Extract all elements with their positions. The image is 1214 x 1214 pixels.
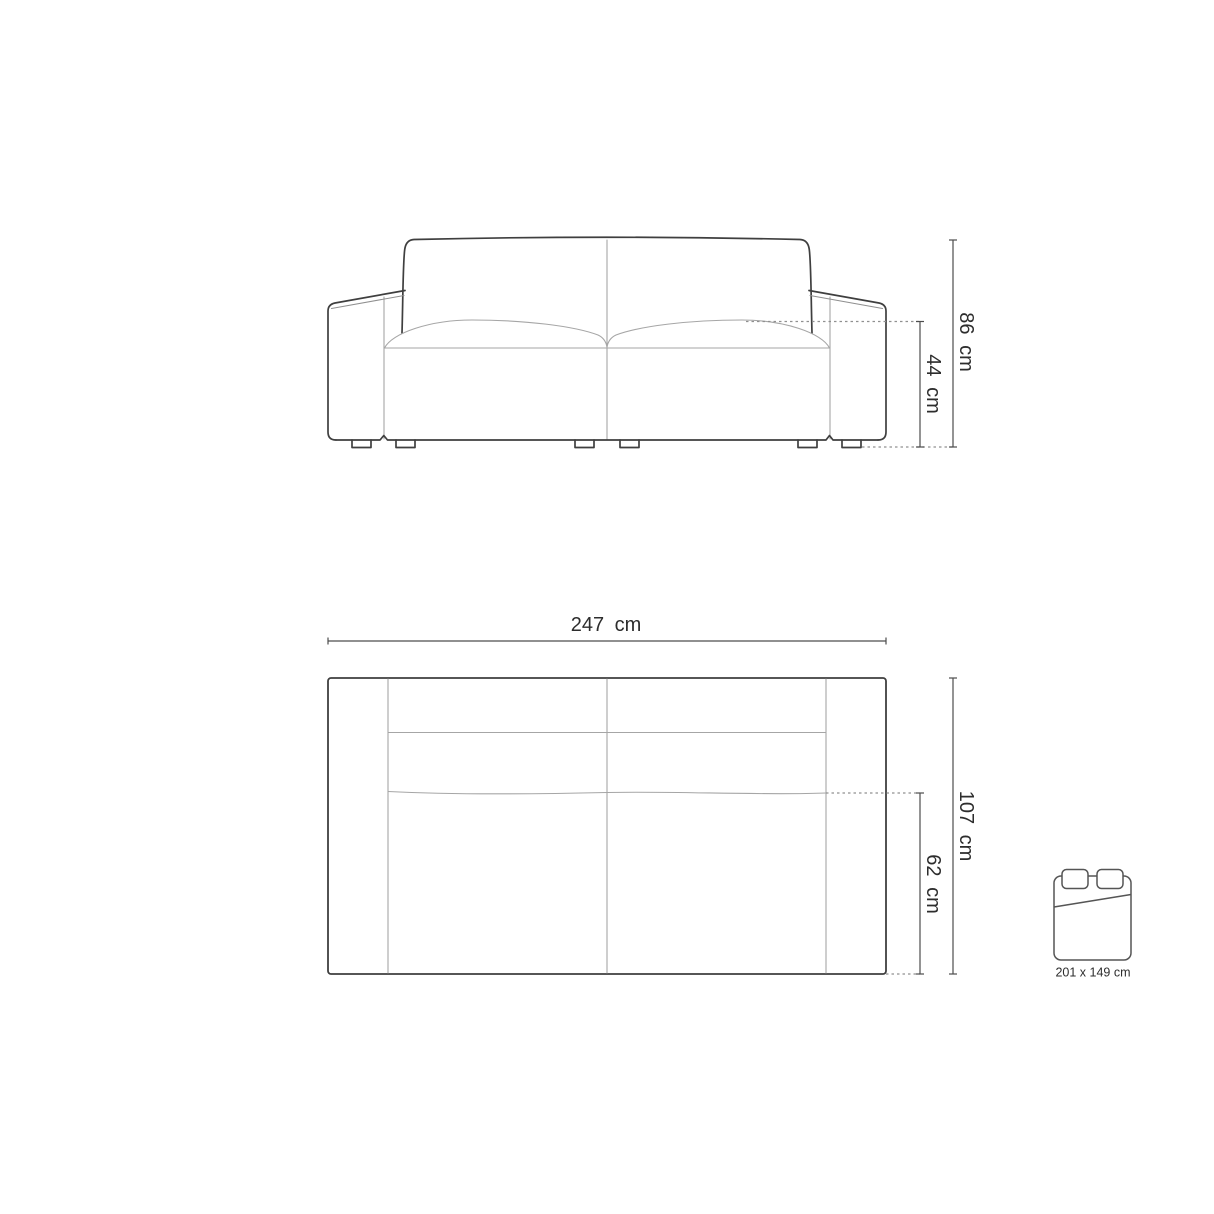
dimension-label-total-depth: 107 cm [955,791,977,862]
bed-pillow-left [1062,870,1088,889]
bed-pillow-right [1097,870,1123,889]
bed-blanket-fold [1054,895,1131,908]
sofa-leg [798,440,817,448]
dimension-label-seat-depth: 62 cm [922,854,944,913]
plan-view [328,678,886,974]
sofa-leg [842,440,861,448]
sofa-leg [620,440,639,448]
front-view-dimensions: 44 cm 86 cm [746,240,977,447]
bed-icon [1054,870,1131,961]
armrest-left [328,291,405,441]
sofa-leg [396,440,415,448]
seat-cushion-left [385,320,608,348]
dimension-label-total-height: 86 cm [955,312,977,371]
front-view [328,237,886,447]
sleeping-area-label: 201 x 149 cm [1055,966,1130,980]
sofa-leg [575,440,594,448]
diagram-svg: 44 cm 86 cm 247 cm 107 cm 62 cm [0,0,1214,1214]
plan-view-dimensions: 247 cm 107 cm 62 cm [328,614,977,974]
dimension-label-total-width: 247 cm [571,614,642,636]
seat-cushion-right [607,320,830,348]
sofa-dimension-diagram: 44 cm 86 cm 247 cm 107 cm 62 cm [0,0,1214,1214]
sleeping-area: 201 x 149 cm [1054,870,1131,980]
sofa-leg [352,440,371,448]
armrest-right [809,291,886,441]
dimension-label-seat-height: 44 cm [922,354,944,413]
